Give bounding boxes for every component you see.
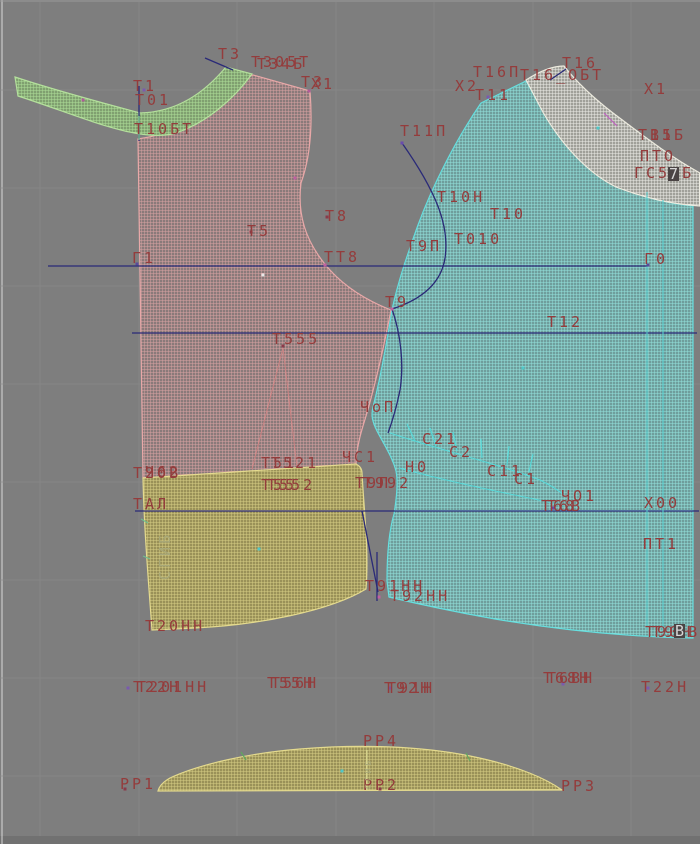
point-marker <box>324 264 327 267</box>
point-marker <box>401 142 404 145</box>
point-marker <box>379 788 382 791</box>
point-marker <box>552 507 555 510</box>
bottom-bar <box>0 836 700 844</box>
point-marker <box>487 96 490 99</box>
pattern-pieces-layer <box>15 66 700 791</box>
point-marker <box>282 345 285 348</box>
point-marker <box>378 596 381 599</box>
point-marker <box>597 127 600 130</box>
point-marker <box>250 231 253 234</box>
pattern-drawing-surface[interactable] <box>0 0 700 844</box>
point-marker <box>143 89 146 92</box>
construction-line <box>205 58 233 70</box>
point-marker <box>647 264 650 267</box>
point-marker <box>647 687 650 690</box>
point-marker <box>562 683 565 686</box>
point-marker <box>326 216 329 219</box>
waistband-piece[interactable] <box>158 746 562 791</box>
point-marker <box>341 770 344 773</box>
pattern-canvas[interactable]: Т3Т305ТТ34БТ3Х1Т1Т01Т10БТТ11ПХ2Т11Т16ПТ1… <box>0 0 700 844</box>
point-marker <box>82 99 85 102</box>
point-marker <box>308 90 311 93</box>
point-marker <box>389 687 392 690</box>
skirt-front-piece[interactable] <box>143 464 367 630</box>
point-marker <box>262 274 265 277</box>
point-marker <box>136 263 139 266</box>
point-marker <box>258 548 261 551</box>
point-marker <box>391 308 394 311</box>
point-marker <box>124 788 127 791</box>
point-marker <box>522 367 525 370</box>
point-marker <box>294 177 297 180</box>
point-marker <box>127 687 130 690</box>
